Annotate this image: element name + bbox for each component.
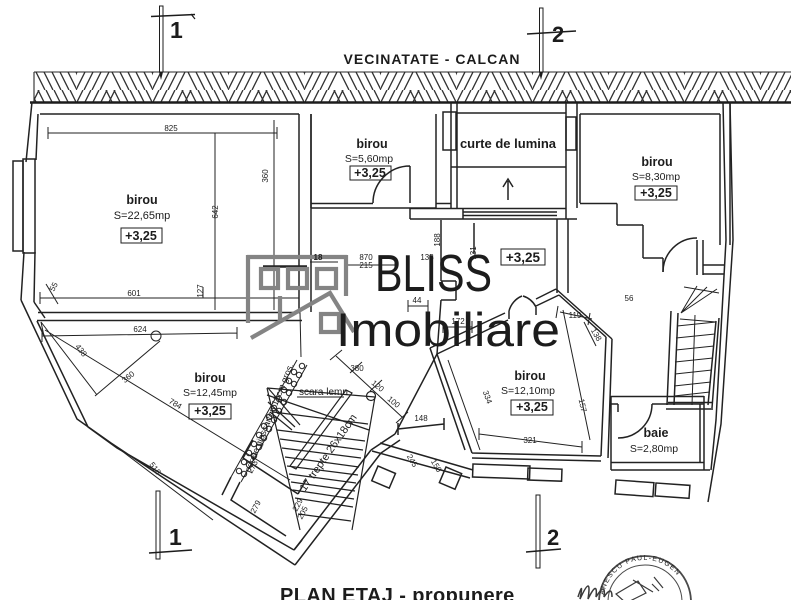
svg-text:birou: birou — [356, 137, 387, 151]
svg-text:360: 360 — [120, 369, 136, 385]
svg-text:624: 624 — [133, 325, 147, 334]
svg-text:642: 642 — [211, 205, 220, 219]
svg-text:S=2,80mp: S=2,80mp — [630, 443, 678, 455]
svg-text:ANESCU PAUL-EUGEN: ANESCU PAUL-EUGEN — [599, 555, 682, 596]
svg-text:baie: baie — [643, 426, 668, 440]
svg-text:360: 360 — [261, 169, 270, 183]
svg-text:birou: birou — [126, 193, 157, 207]
svg-text:148: 148 — [414, 414, 428, 423]
svg-text:127: 127 — [196, 284, 205, 298]
svg-text:2: 2 — [552, 22, 564, 47]
svg-text:784: 784 — [167, 397, 184, 412]
svg-text:601: 601 — [127, 289, 141, 298]
svg-text:+3,25: +3,25 — [194, 404, 226, 418]
svg-text:380: 380 — [350, 364, 364, 373]
svg-text:119: 119 — [569, 311, 582, 320]
svg-text:131: 131 — [469, 246, 478, 260]
svg-text:279: 279 — [249, 498, 263, 514]
svg-text:Imobiliare: Imobiliare — [336, 303, 560, 356]
svg-text:birou: birou — [514, 369, 545, 383]
svg-text:215: 215 — [359, 261, 373, 270]
svg-text:157: 157 — [577, 398, 589, 413]
svg-text:56: 56 — [625, 294, 634, 303]
svg-text:438: 438 — [73, 342, 89, 358]
svg-text:172: 172 — [451, 317, 465, 326]
svg-text:135: 135 — [420, 253, 434, 262]
svg-text:44: 44 — [413, 296, 422, 305]
svg-text:1: 1 — [169, 524, 182, 550]
svg-text:VECINATATE - CALCAN: VECINATATE - CALCAN — [344, 51, 521, 67]
svg-text:S=8,30mp: S=8,30mp — [632, 171, 680, 183]
svg-text:825: 825 — [164, 124, 178, 133]
svg-text:321: 321 — [523, 436, 537, 445]
svg-text:1: 1 — [170, 17, 183, 43]
svg-text:+3,25: +3,25 — [506, 250, 541, 265]
svg-text:+3,25: +3,25 — [516, 400, 548, 414]
svg-text:S=5,60mp: S=5,60mp — [345, 153, 393, 165]
svg-text:55: 55 — [48, 280, 60, 293]
svg-text:518: 518 — [147, 460, 163, 477]
svg-text:334: 334 — [481, 389, 494, 405]
svg-text:100: 100 — [386, 394, 402, 410]
svg-text:scara lemn: scara lemn — [299, 387, 348, 398]
svg-text:birou: birou — [194, 371, 225, 385]
svg-text:S=12,45mp: S=12,45mp — [183, 387, 237, 399]
svg-text:PLAN ETAJ - propunere: PLAN ETAJ - propunere — [280, 585, 515, 600]
svg-text:birou: birou — [641, 155, 672, 169]
svg-text:18: 18 — [314, 253, 323, 262]
svg-text:+3,25: +3,25 — [354, 166, 386, 180]
svg-text:S=22,65mp: S=22,65mp — [114, 210, 171, 222]
svg-text:+3,25: +3,25 — [125, 229, 157, 243]
svg-text:+3,25: +3,25 — [640, 186, 672, 200]
svg-text:245: 245 — [405, 453, 420, 470]
svg-text:188: 188 — [433, 233, 442, 247]
svg-text:2: 2 — [547, 525, 559, 550]
svg-text:S=12,10mp: S=12,10mp — [501, 385, 555, 397]
svg-text:curte de lumina: curte de lumina — [460, 136, 557, 151]
